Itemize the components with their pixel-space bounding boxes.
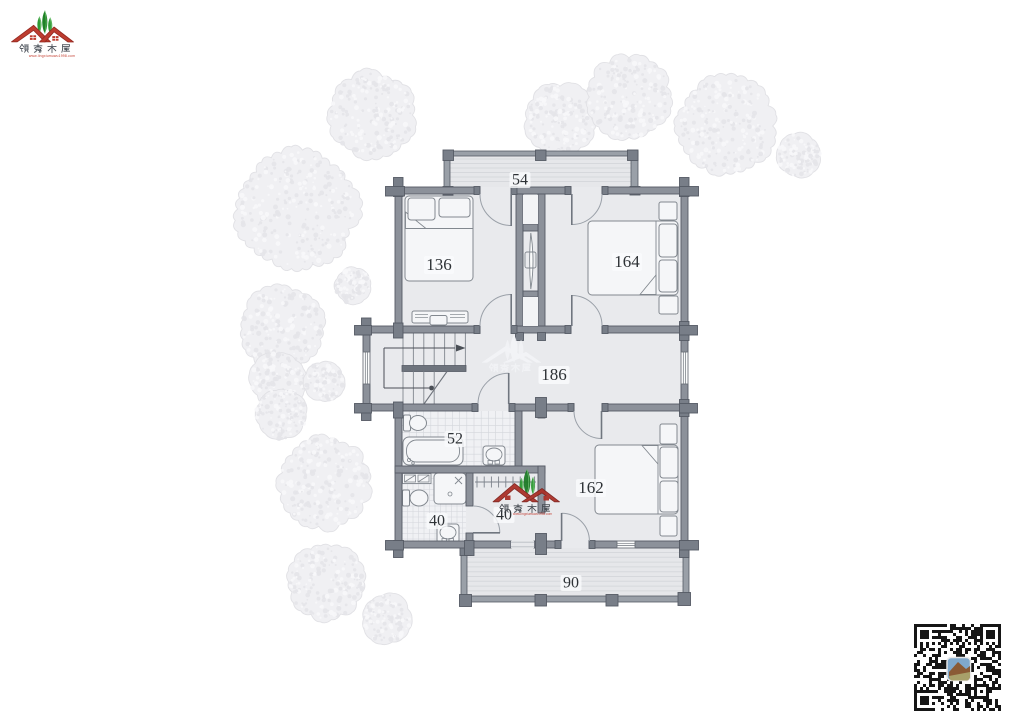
svg-text:40: 40 [429,513,445,530]
svg-text:164: 164 [614,252,640,271]
svg-text:40: 40 [496,507,512,524]
svg-text:186: 186 [541,365,567,384]
svg-text:www.lingxiumuwu1998.com: www.lingxiumuwu1998.com [513,512,552,516]
svg-text:90: 90 [563,575,579,592]
svg-text:136: 136 [426,255,452,274]
svg-text:52: 52 [447,431,463,448]
svg-text:162: 162 [578,478,604,497]
svg-text:www.lingxiumuwu1998.com: www.lingxiumuwu1998.com [29,54,75,58]
svg-text:54: 54 [512,172,528,189]
